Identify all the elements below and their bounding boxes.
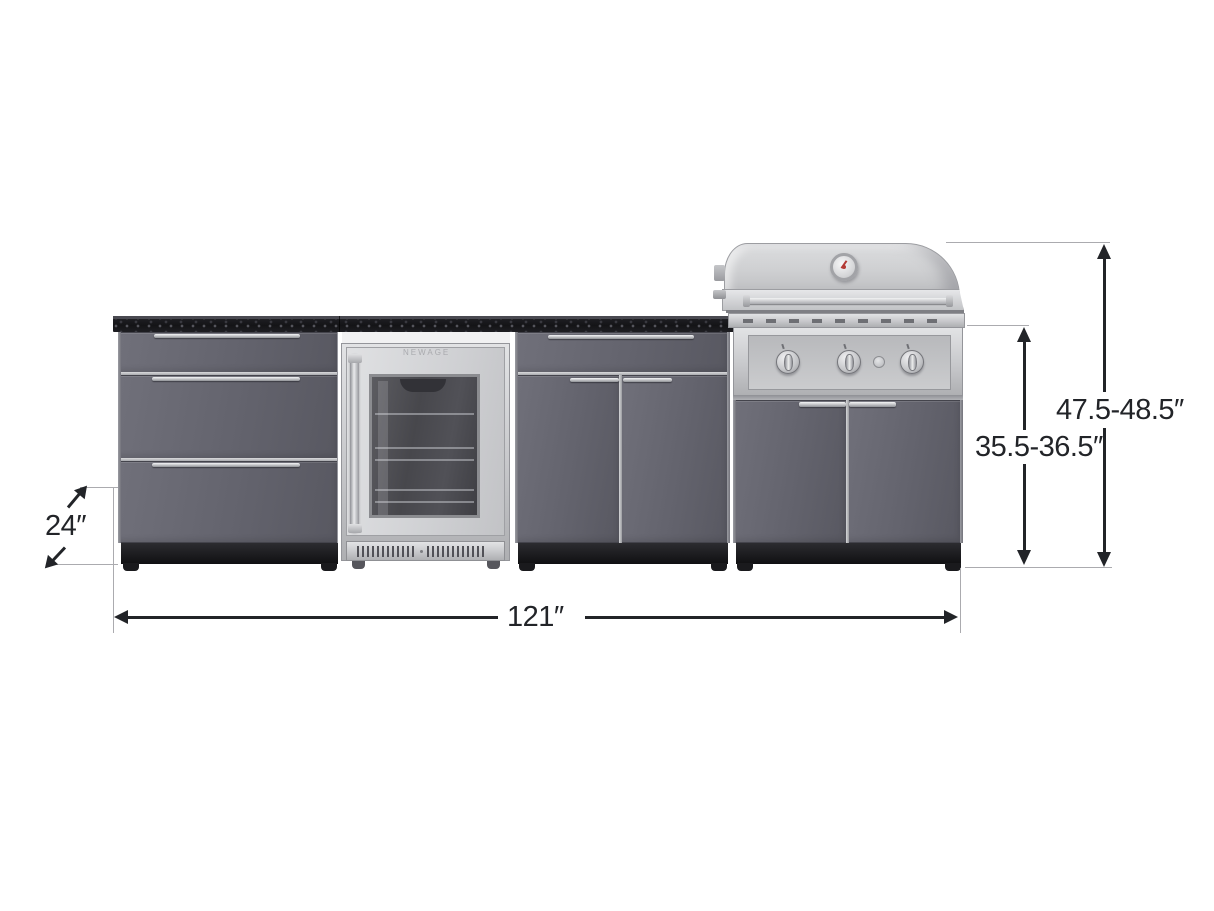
burner-knob [837, 350, 861, 374]
cabinet-foot [945, 563, 961, 571]
cabinet-edge-trim [118, 332, 121, 543]
overall-width-label: 121″ [507, 603, 564, 632]
door-divider [619, 375, 622, 543]
fridge-shelf [375, 501, 474, 503]
fridge-shelf [375, 489, 474, 491]
arrowhead-down [1017, 550, 1031, 565]
arrowhead-right [944, 610, 958, 624]
vent-slats [427, 546, 487, 557]
thermometer [830, 253, 858, 281]
grill-vent-dashes [743, 319, 949, 323]
cabinet-edge-trim [733, 400, 736, 543]
cabinet-foot [711, 563, 727, 571]
cabinet-door [515, 375, 622, 543]
drawer-handle [152, 463, 300, 467]
depth-label: 24″ [45, 512, 86, 541]
grill-door [733, 400, 848, 543]
cabinet-edge-trim [960, 400, 963, 543]
height-dim-line [1103, 257, 1106, 392]
hood-handle-cap [743, 295, 750, 307]
fridge-shelf [375, 459, 474, 461]
grill-body-lip [728, 313, 965, 328]
vent-screw [420, 550, 423, 553]
hood-handle-cap [946, 295, 953, 307]
fridge-foot [487, 561, 500, 569]
extension-line-width-right [960, 568, 961, 633]
dimension-diagram: NEWAGE [0, 0, 1214, 911]
burner-knob [900, 350, 924, 374]
fridge-glass-window [369, 374, 480, 518]
width-dim-line [127, 616, 498, 619]
door-handle [799, 402, 846, 407]
fridge-handle-mount [348, 524, 362, 533]
drawer-front [118, 461, 340, 543]
fridge-logo: NEWAGE [403, 349, 450, 357]
glass-reflection [378, 381, 388, 515]
door-handle [849, 402, 896, 407]
extension-line-counter-right [967, 325, 1029, 326]
extension-line-hood-top [946, 242, 1110, 243]
cabinet-foot [737, 563, 753, 571]
cabinet-plinth [121, 543, 338, 564]
drawer-front [118, 375, 340, 459]
counter-height-dim-line [1023, 340, 1026, 430]
hood-hinge [713, 290, 726, 299]
drawer-front [118, 332, 340, 373]
cabinet-foot [123, 563, 139, 571]
door-handle [623, 378, 672, 382]
drawer-handle [154, 334, 300, 338]
arrowhead-left [114, 610, 128, 624]
fridge-shelf [375, 413, 474, 415]
overall-height-label: 47.5-48.5″ [1056, 396, 1184, 425]
width-dim-line [585, 616, 945, 619]
fridge-shelf [375, 447, 474, 449]
cabinet-edge-trim [515, 332, 518, 543]
height-dim-line [1103, 428, 1106, 554]
cabinet-foot [321, 563, 337, 571]
door-divider [846, 400, 849, 543]
cabinet-door [621, 375, 730, 543]
cabinet-plinth [736, 543, 961, 564]
drawer-handle [548, 335, 694, 339]
granite-countertop [113, 316, 735, 332]
countertop-seam [339, 316, 340, 332]
arrowhead-down [1097, 552, 1111, 567]
counter-height-label: 35.5-36.5″ [975, 433, 1103, 462]
fridge-handle-mount [348, 354, 362, 363]
burner-knob [776, 350, 800, 374]
fridge-foot [352, 561, 365, 569]
cabinet-plinth [518, 543, 728, 564]
depth-arrow-up [67, 493, 81, 509]
door-handle [570, 378, 619, 382]
igniter-button [873, 356, 885, 368]
countertop-bevel [113, 316, 735, 319]
fridge-fan-housing [400, 379, 446, 392]
cabinet-foot [519, 563, 535, 571]
fridge-handle [350, 354, 359, 532]
hood-hinge [714, 265, 725, 281]
counter-height-dim-line [1023, 464, 1026, 552]
vent-slats [357, 546, 417, 557]
fridge-vent-grille [346, 541, 505, 561]
grill-control-panel [733, 327, 963, 397]
extension-line-base-right [965, 567, 1112, 568]
thermometer-center [842, 265, 846, 269]
grill-hood-handle [746, 298, 950, 304]
grill-door [847, 400, 963, 543]
depth-arrow-down [52, 546, 66, 561]
drawer-handle [152, 377, 300, 381]
